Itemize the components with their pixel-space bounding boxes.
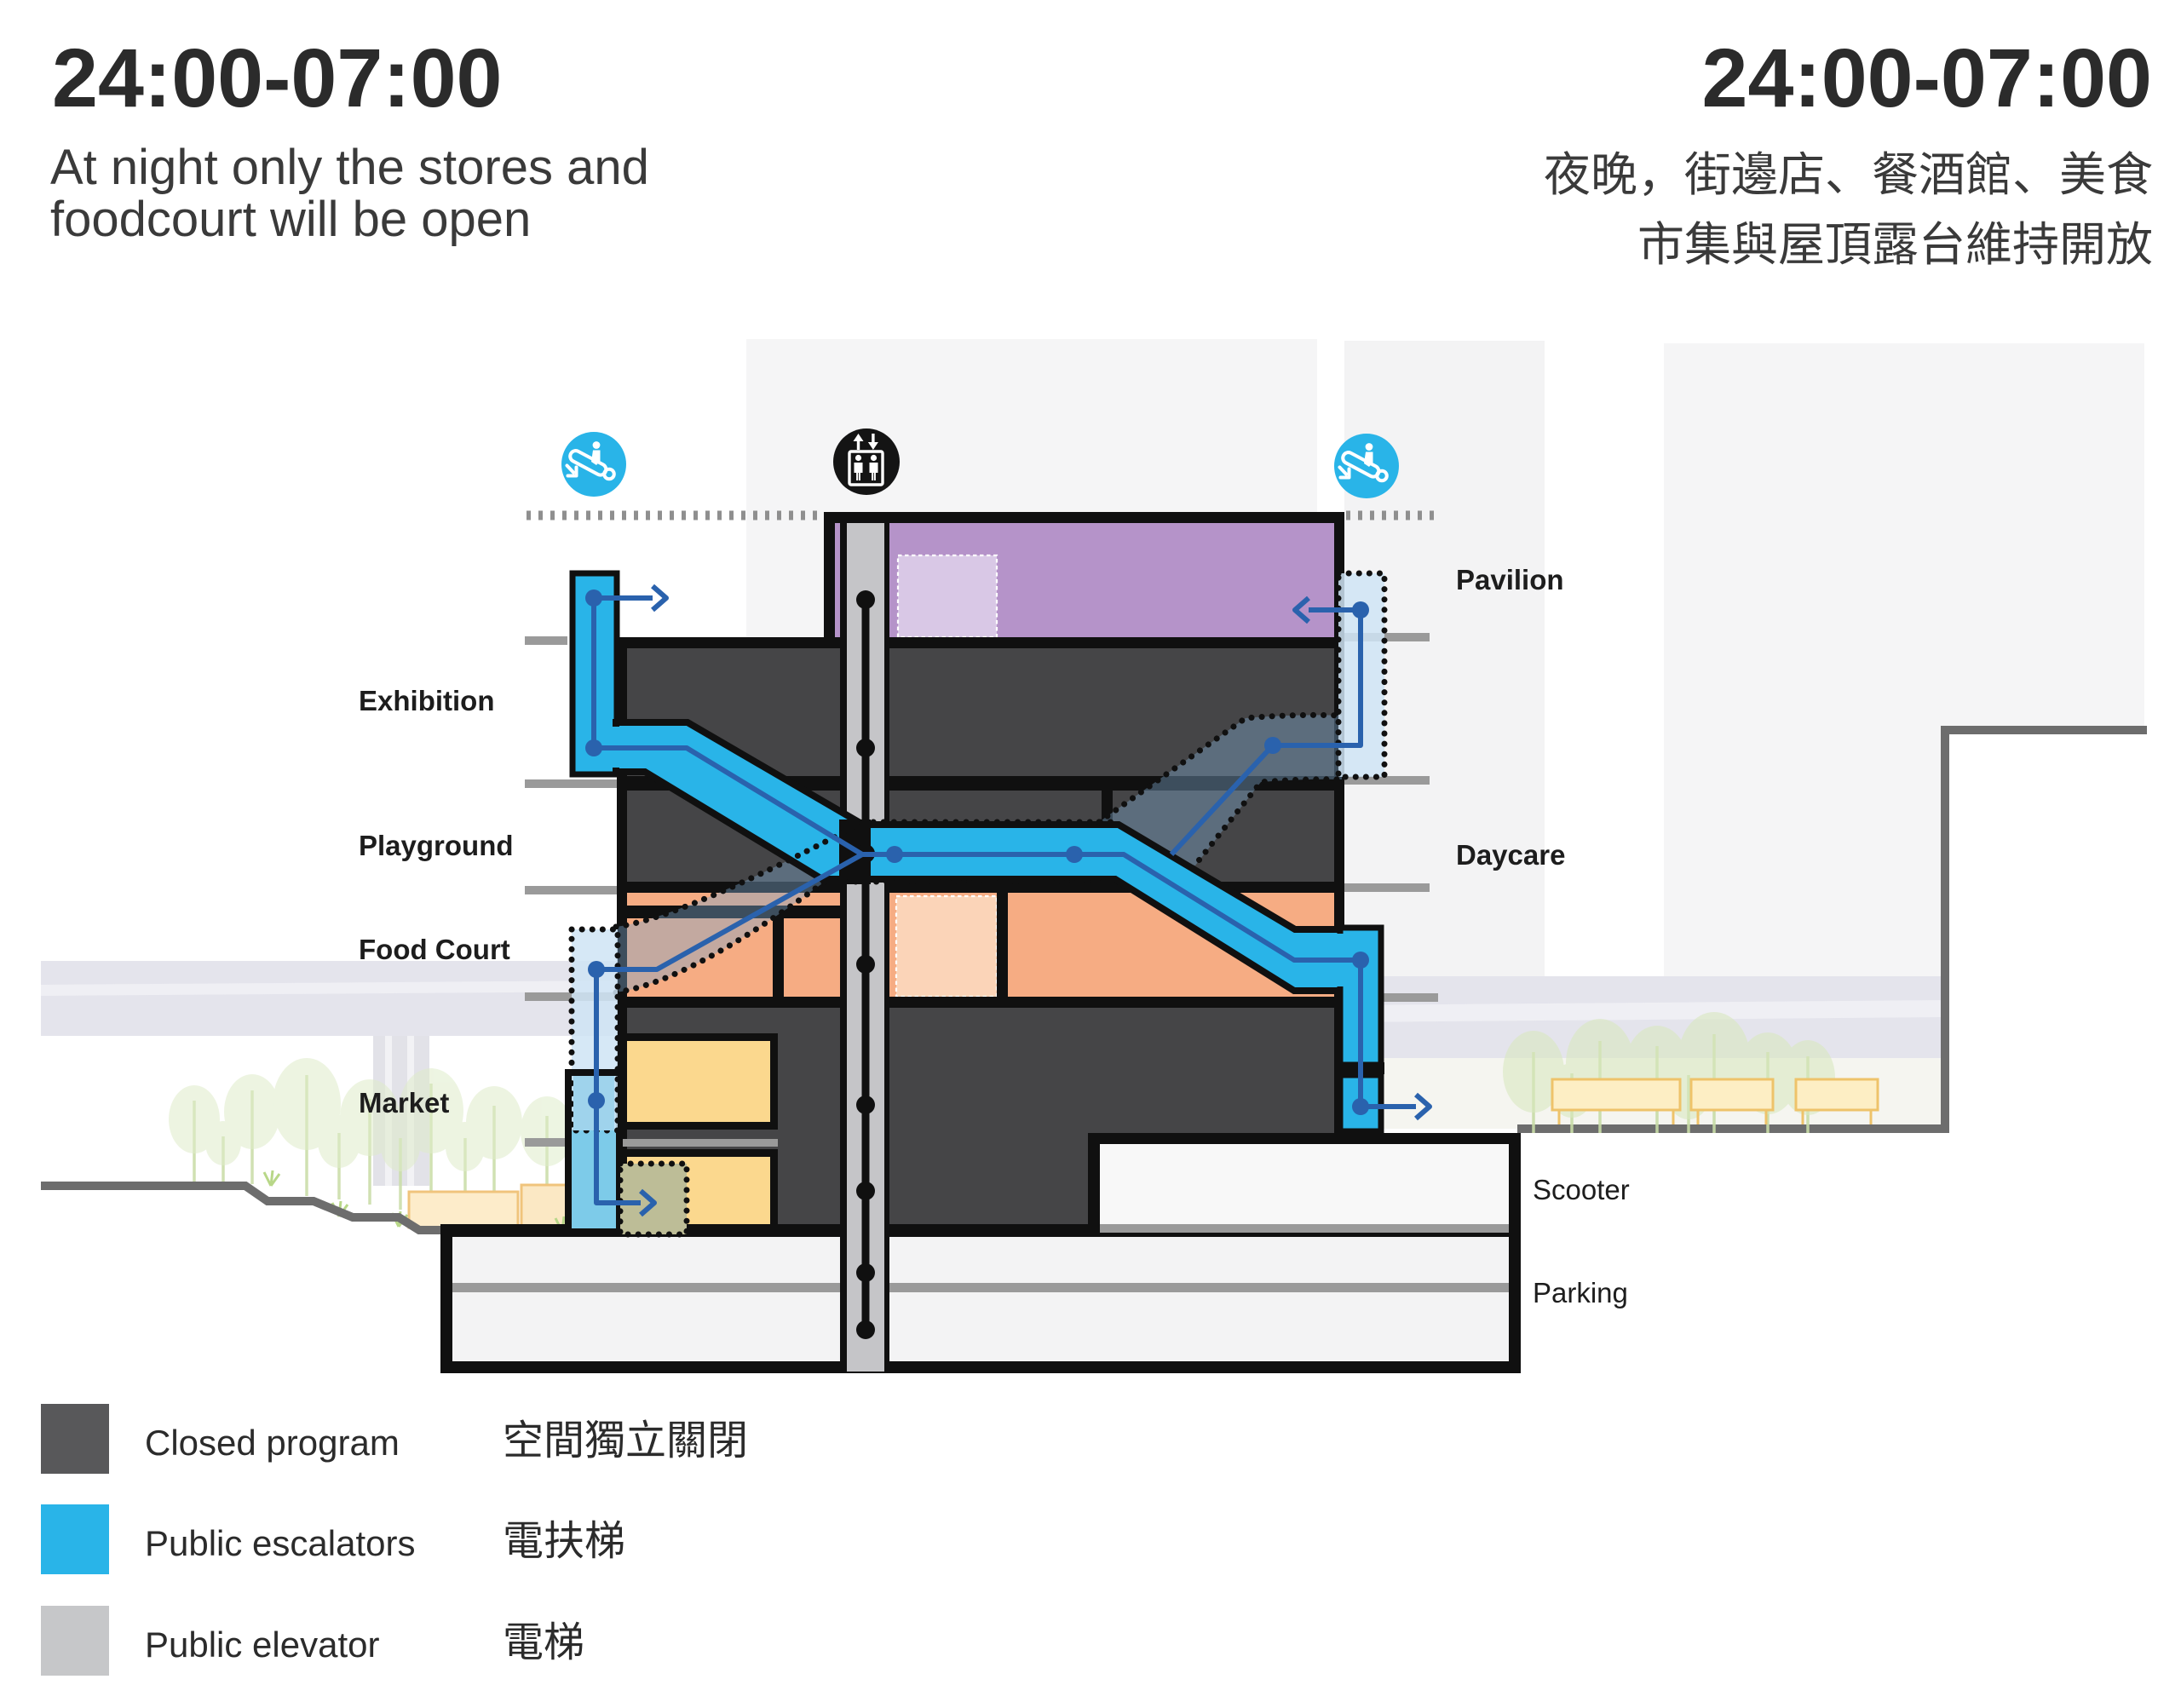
svg-text:At night only the stores and: At night only the stores and bbox=[50, 140, 649, 195]
svg-text:Public escalators: Public escalators bbox=[145, 1523, 415, 1563]
svg-text:Public elevator: Public elevator bbox=[145, 1625, 379, 1665]
svg-text:Closed program: Closed program bbox=[145, 1423, 400, 1463]
svg-text:Playground: Playground bbox=[359, 830, 514, 861]
svg-text:Parking: Parking bbox=[1533, 1277, 1628, 1308]
svg-text:夜晚，街邊店、餐酒館、美食: 夜晚，街邊店、餐酒館、美食 bbox=[1544, 148, 2153, 201]
svg-text:市集與屋頂露台維持開放: 市集與屋頂露台維持開放 bbox=[1637, 218, 2153, 271]
svg-text:Scooter: Scooter bbox=[1533, 1174, 1630, 1205]
svg-text:Market: Market bbox=[359, 1087, 449, 1119]
svg-text:Exhibition: Exhibition bbox=[359, 685, 495, 716]
svg-text:Food Court: Food Court bbox=[359, 934, 510, 965]
svg-text:foodcourt will be open: foodcourt will be open bbox=[50, 192, 531, 247]
svg-text:24:00-07:00: 24:00-07:00 bbox=[52, 32, 502, 124]
svg-text:電梯: 電梯 bbox=[503, 1620, 584, 1665]
svg-text:24:00-07:00: 24:00-07:00 bbox=[1702, 32, 2152, 124]
svg-text:電扶梯: 電扶梯 bbox=[503, 1519, 625, 1564]
svg-text:Pavilion: Pavilion bbox=[1456, 564, 1564, 595]
svg-text:Daycare: Daycare bbox=[1456, 839, 1565, 871]
svg-text:空間獨立關閉: 空間獨立關閉 bbox=[503, 1418, 748, 1464]
